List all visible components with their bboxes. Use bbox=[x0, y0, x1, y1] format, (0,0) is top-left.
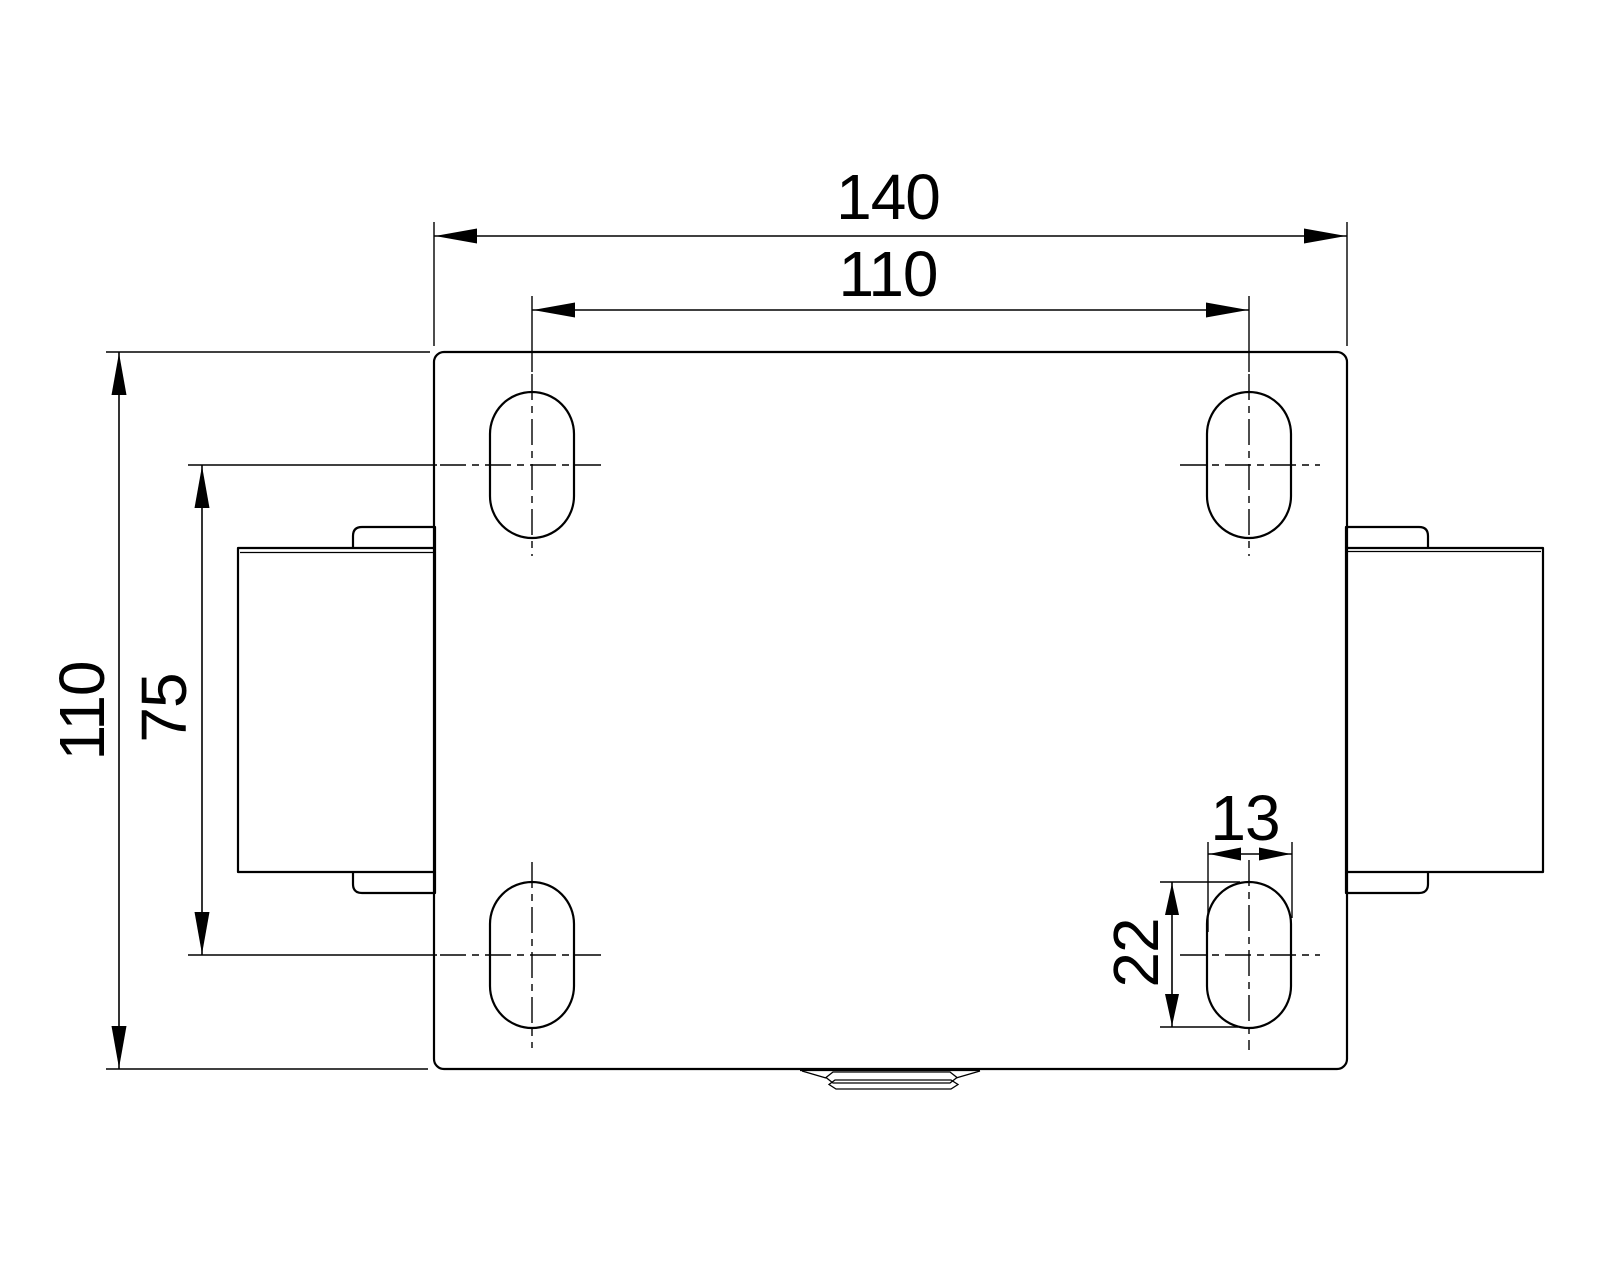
dim-slot-length-label: 22 bbox=[1100, 918, 1172, 987]
dim-hole-pitch-height-label: 75 bbox=[128, 673, 200, 742]
dim-slot-width-label: 13 bbox=[1210, 782, 1279, 854]
dim-plate-width-label: 140 bbox=[836, 161, 940, 233]
drawing-page: 140 110 110 75 13 bbox=[0, 0, 1600, 1280]
dim-plate-height-label: 110 bbox=[46, 661, 118, 760]
technical-drawing: 140 110 110 75 13 bbox=[0, 0, 1600, 1280]
drawing-background bbox=[0, 0, 1600, 1280]
dim-hole-pitch-width-label: 110 bbox=[838, 238, 937, 310]
